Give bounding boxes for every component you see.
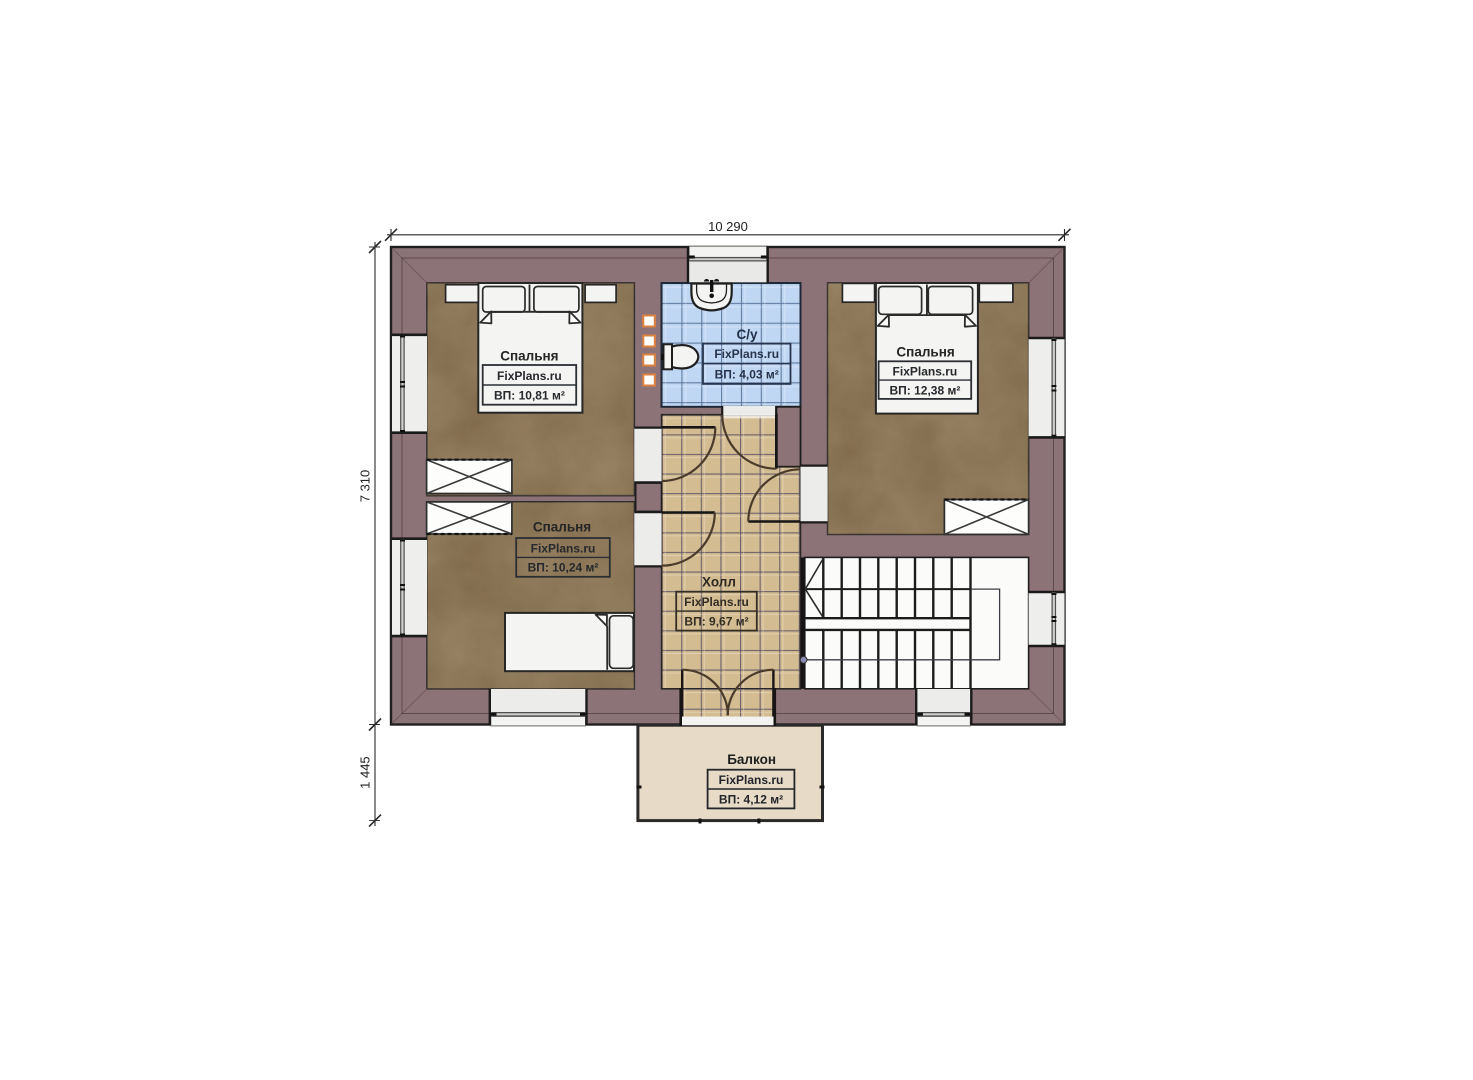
svg-text:Спальня: Спальня: [500, 349, 558, 364]
svg-text:ВП: 10,81 м²: ВП: 10,81 м²: [494, 389, 565, 403]
svg-text:ВП: 10,24 м²: ВП: 10,24 м²: [528, 561, 599, 575]
svg-text:FixPlans.ru: FixPlans.ru: [719, 773, 784, 787]
svg-text:FixPlans.ru: FixPlans.ru: [714, 347, 779, 361]
svg-text:7 310: 7 310: [358, 470, 373, 503]
svg-text:10 290: 10 290: [708, 219, 748, 234]
svg-text:Спальня: Спальня: [533, 520, 591, 535]
svg-text:ВП: 4,12 м²: ВП: 4,12 м²: [719, 792, 783, 806]
svg-text:ВП: 12,38 м²: ВП: 12,38 м²: [889, 383, 960, 397]
svg-text:Спальня: Спальня: [896, 344, 954, 359]
svg-text:FixPlans.ru: FixPlans.ru: [531, 541, 596, 555]
svg-text:FixPlans.ru: FixPlans.ru: [684, 595, 749, 609]
svg-text:FixPlans.ru: FixPlans.ru: [893, 365, 958, 379]
svg-text:С/у: С/у: [736, 327, 758, 342]
svg-text:1 445: 1 445: [358, 756, 373, 789]
svg-text:Холл: Холл: [702, 575, 736, 590]
svg-text:ВП: 4,03 м²: ВП: 4,03 м²: [715, 367, 779, 381]
svg-text:Балкон: Балкон: [727, 752, 776, 767]
svg-text:ВП: 9,67 м²: ВП: 9,67 м²: [684, 614, 748, 628]
svg-text:FixPlans.ru: FixPlans.ru: [497, 369, 562, 383]
